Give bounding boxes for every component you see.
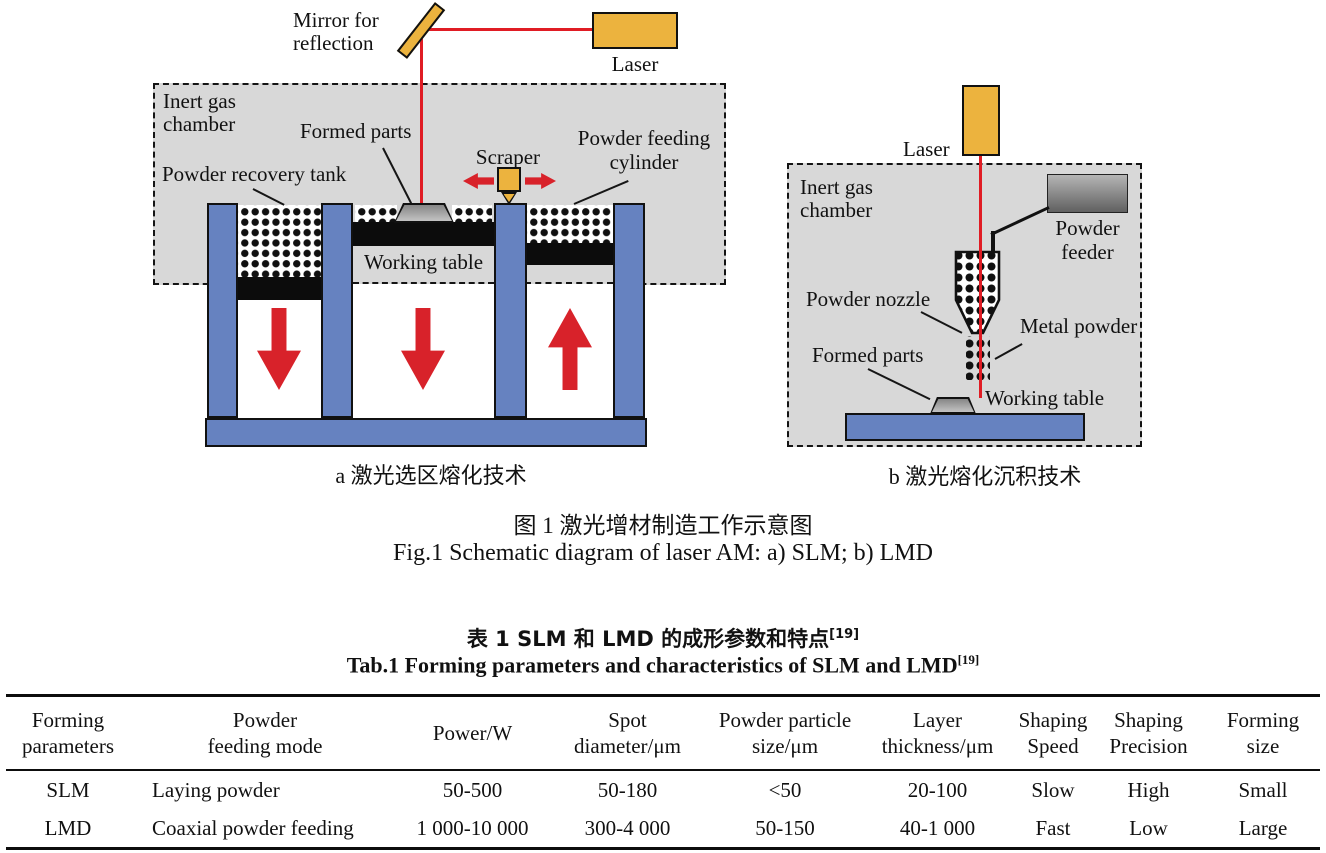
powder-bed-layer (353, 222, 494, 246)
slm-speed: Slow (1015, 771, 1091, 809)
working-table-label-b: Working table (985, 387, 1104, 410)
powder-nozzle-label: Powder nozzle (806, 288, 930, 311)
working-table-label-a: Working table (353, 250, 494, 274)
feeding-cylinder-label: Powder feeding cylinder (574, 126, 714, 174)
lmd-particle-size: 50-150 (710, 809, 860, 847)
formed-part-b-fill (932, 399, 974, 412)
lmd-layer-thickness: 40-1 000 (860, 809, 1015, 847)
formed-part-b (930, 397, 976, 414)
slm-feeding-mode: Laying powder (130, 771, 400, 809)
formed-part-a (394, 203, 454, 223)
table-header-row: Formingparameters Powderfeeding mode Pow… (6, 697, 1320, 771)
lmd-speed: Fast (1015, 809, 1091, 847)
header-power: Power/W (400, 697, 545, 769)
formed-parts-label-b: Formed parts (812, 344, 923, 367)
metal-powder-label: Metal powder (1020, 315, 1137, 338)
table-title-en: Tab.1 Forming parameters and characteris… (0, 652, 1326, 678)
figure-caption-en: Fig.1 Schematic diagram of laser AM: a) … (0, 540, 1326, 567)
formed-parts-label-a: Formed parts (300, 120, 411, 143)
slm-spot-diameter: 50-180 (545, 771, 710, 809)
cylinder-wall-4 (613, 203, 645, 418)
header-shaping-precision: ShapingPrecision (1091, 697, 1206, 769)
falling-metal-powder (966, 336, 990, 380)
table-row-lmd: LMD Coaxial powder feeding 1 000-10 000 … (6, 809, 1320, 847)
header-powder-particle-size: Powder particlesize/μm (710, 697, 860, 769)
lmd-precision: Low (1091, 809, 1206, 847)
parameters-table: Formingparameters Powderfeeding mode Pow… (6, 694, 1320, 850)
slm-size: Small (1206, 771, 1320, 809)
working-table-b (845, 413, 1085, 441)
header-forming-size: Formingsize (1206, 697, 1320, 769)
slm-layer-thickness: 20-100 (860, 771, 1015, 809)
laser-box-a (592, 12, 678, 49)
table-title-zh: 表 1 SLM 和 LMD 的成形参数和特点[19] (0, 623, 1326, 653)
powder-feeder-icon (1047, 174, 1128, 213)
recovery-tank-powder (238, 205, 321, 277)
inert-gas-label-a: Inert gas chamber (163, 90, 236, 136)
cylinder-wall-3 (494, 203, 527, 418)
powder-feeder-label: Powder feeder (1040, 216, 1135, 264)
chamber-bottom-dash-right (525, 282, 613, 284)
laser-label-b: Laser (903, 138, 950, 161)
header-layer-thickness: Layerthickness/μm (860, 697, 1015, 769)
slm-precision: High (1091, 771, 1206, 809)
recovery-tank-label: Powder recovery tank (162, 163, 346, 186)
laser-beam-vertical-b (979, 156, 982, 398)
lmd-name: LMD (6, 809, 130, 847)
header-forming-parameters: Formingparameters (6, 697, 130, 769)
powder-nozzle-shape (953, 250, 1003, 382)
feeding-cylinder-piston (527, 243, 613, 265)
caption-b: b 激光熔化沉积技术 (835, 459, 1135, 491)
slm-power: 50-500 (400, 771, 545, 809)
cylinder-wall-2 (321, 203, 353, 418)
header-powder-feeding-mode: Powderfeeding mode (130, 697, 400, 769)
powder-bed-right (452, 205, 492, 222)
caption-a: a 激光选区熔化技术 (281, 458, 581, 490)
header-shaping-speed: ShapingSpeed (1015, 697, 1091, 769)
machine-base (205, 418, 647, 447)
header-spot-diameter: Spotdiameter/μm (545, 697, 710, 769)
lmd-spot-diameter: 300-4 000 (545, 809, 710, 847)
chamber-bottom-dash-mid (353, 282, 494, 284)
cylinder-wall-1 (207, 203, 238, 418)
laser-label-a: Laser (592, 52, 678, 76)
lmd-feeding-mode: Coaxial powder feeding (130, 809, 400, 847)
scraper-label: Scraper (470, 145, 546, 169)
slm-name: SLM (6, 771, 130, 809)
figure-caption-zh: 图 1 激光增材制造工作示意图 (0, 506, 1326, 540)
scraper-icon (497, 167, 521, 192)
laser-beam-horizontal (424, 28, 594, 31)
inert-gas-label-b: Inert gas chamber (800, 176, 873, 222)
lmd-size: Large (1206, 809, 1320, 847)
powder-bed-left (355, 205, 397, 222)
paper-figure-page: Laser Mirror for reflection Inert gas ch… (0, 0, 1326, 853)
laser-beam-vertical-a (420, 28, 423, 206)
slm-particle-size: <50 (710, 771, 860, 809)
lmd-power: 1 000-10 000 (400, 809, 545, 847)
laser-box-b (962, 85, 1000, 156)
recovery-tank-piston (238, 277, 321, 300)
table-title-zh-ref: [19] (829, 627, 859, 642)
mirror-label: Mirror for reflection (293, 9, 379, 55)
feeding-cylinder-powder (527, 205, 613, 243)
formed-part-a-fill (396, 205, 452, 221)
table-title-en-ref: [19] (958, 652, 980, 667)
table-row-slm: SLM Laying powder 50-500 50-180 <50 20-1… (6, 771, 1320, 809)
